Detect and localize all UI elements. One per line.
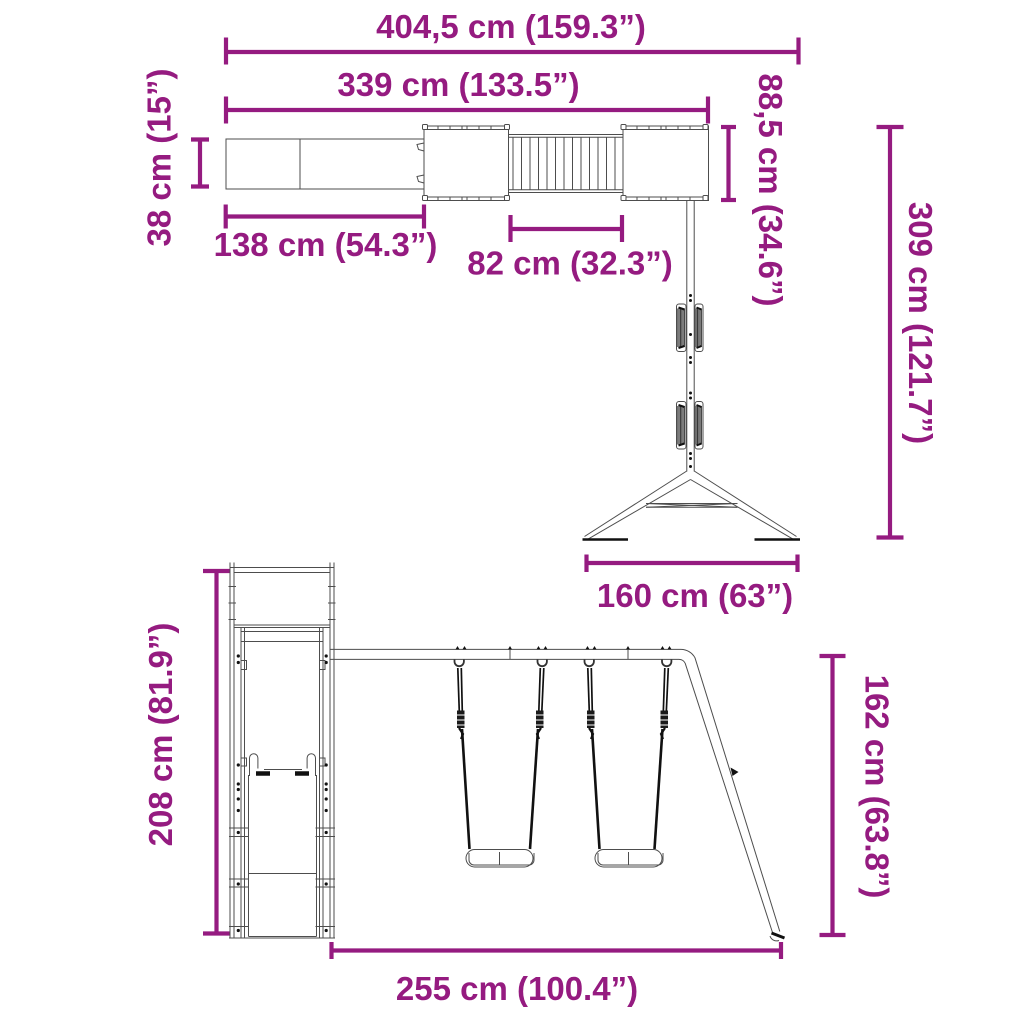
svg-text:309 cm (121.7”): 309 cm (121.7”) bbox=[902, 202, 939, 444]
svg-text:208 cm (81.9”): 208 cm (81.9”) bbox=[142, 623, 179, 847]
svg-text:339 cm (133.5”): 339 cm (133.5”) bbox=[337, 66, 579, 103]
svg-text:138 cm (54.3”): 138 cm (54.3”) bbox=[214, 226, 438, 263]
svg-text:160 cm (63”): 160 cm (63”) bbox=[597, 577, 793, 614]
svg-text:82 cm (32.3”): 82 cm (32.3”) bbox=[467, 245, 672, 282]
svg-text:162 cm (63.8”): 162 cm (63.8”) bbox=[859, 675, 896, 899]
svg-text:404,5 cm (159.3”): 404,5 cm (159.3”) bbox=[376, 8, 646, 45]
svg-text:255 cm (100.4”): 255 cm (100.4”) bbox=[396, 970, 638, 1007]
svg-text:88,5 cm (34.6”): 88,5 cm (34.6”) bbox=[752, 74, 789, 307]
svg-text:38 cm (15”): 38 cm (15”) bbox=[141, 69, 178, 247]
